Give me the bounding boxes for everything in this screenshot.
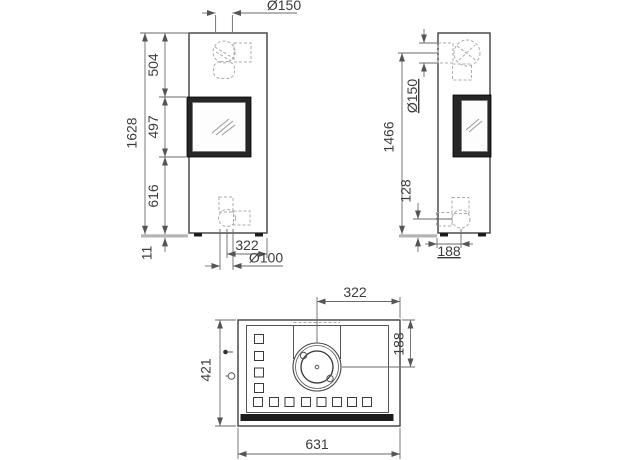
top-front-face-band	[241, 414, 394, 421]
side-bottom-flue-depth-label: 188	[437, 243, 461, 259]
front-top-to-door-label: 504	[145, 53, 161, 77]
top-door-hinge	[223, 350, 235, 380]
stove-dimension-drawing: 1628 504 497 616 11 Ø150 322 Ø100	[0, 0, 624, 460]
side-bottom-flue-height-label: 128	[398, 179, 414, 203]
side-rear-foot	[440, 233, 448, 237]
side-view: 1466 Ø150 128 188	[381, 29, 492, 259]
front-top-flue-diameter-label: Ø150	[267, 0, 301, 13]
top-flue-right-offset-label: 322	[343, 284, 367, 300]
front-floor-line	[141, 234, 188, 237]
front-total-height-label: 1628	[124, 117, 140, 148]
front-door	[187, 97, 251, 157]
side-front-foot	[478, 233, 486, 237]
front-bottom-flue-diameter-label: Ø100	[249, 250, 283, 266]
dimension-drawing-page: 1628 504 497 616 11 Ø150 322 Ø100	[0, 0, 624, 460]
top-width-label: 631	[305, 436, 329, 452]
front-door-to-floor-label: 616	[145, 184, 161, 208]
top-view: 421 631 322 188	[198, 284, 416, 459]
top-flue-rear-offset-label: 188	[391, 332, 407, 356]
side-floor-line	[399, 234, 437, 237]
side-door-glass	[462, 101, 488, 152]
front-base-height-label: 11	[139, 246, 155, 261]
front-view: 1628 504 497 616 11 Ø150 322 Ø100	[124, 0, 302, 270]
side-rear-flue-diameter-label: Ø150	[404, 79, 420, 113]
top-depth-label: 421	[198, 358, 214, 382]
front-door-height-label: 497	[145, 115, 161, 139]
front-right-foot	[255, 233, 263, 237]
front-left-foot	[194, 233, 202, 237]
side-door	[453, 95, 491, 157]
side-rear-flue-height-label: 1466	[381, 121, 397, 152]
